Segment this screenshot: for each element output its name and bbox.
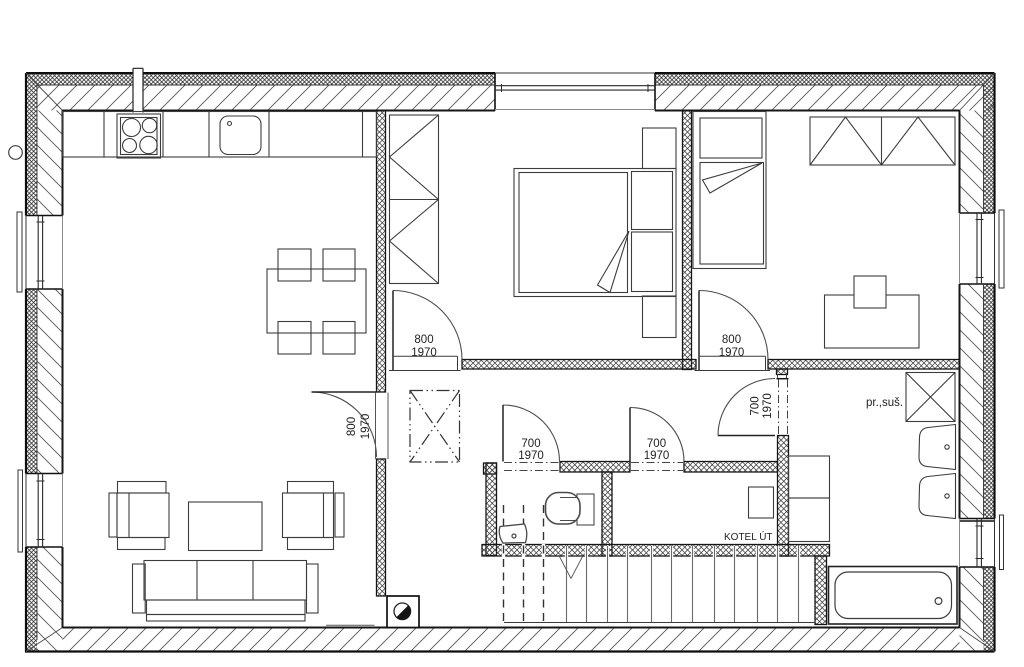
svg-text:1970: 1970 [644, 450, 670, 462]
svg-text:700: 700 [521, 438, 540, 450]
svg-text:KOTEL ÚT: KOTEL ÚT [724, 530, 773, 543]
svg-text:1970: 1970 [762, 393, 774, 419]
svg-text:800: 800 [414, 334, 433, 346]
svg-text:1970: 1970 [518, 450, 544, 462]
svg-text:800: 800 [722, 334, 741, 346]
svg-text:800: 800 [346, 417, 358, 436]
svg-text:1970: 1970 [719, 347, 745, 359]
svg-text:1970: 1970 [360, 414, 372, 440]
svg-text:700: 700 [647, 438, 666, 450]
svg-text:700: 700 [750, 396, 762, 415]
svg-text:pr.,suš.: pr.,suš. [866, 397, 903, 409]
svg-text:1970: 1970 [411, 347, 437, 359]
